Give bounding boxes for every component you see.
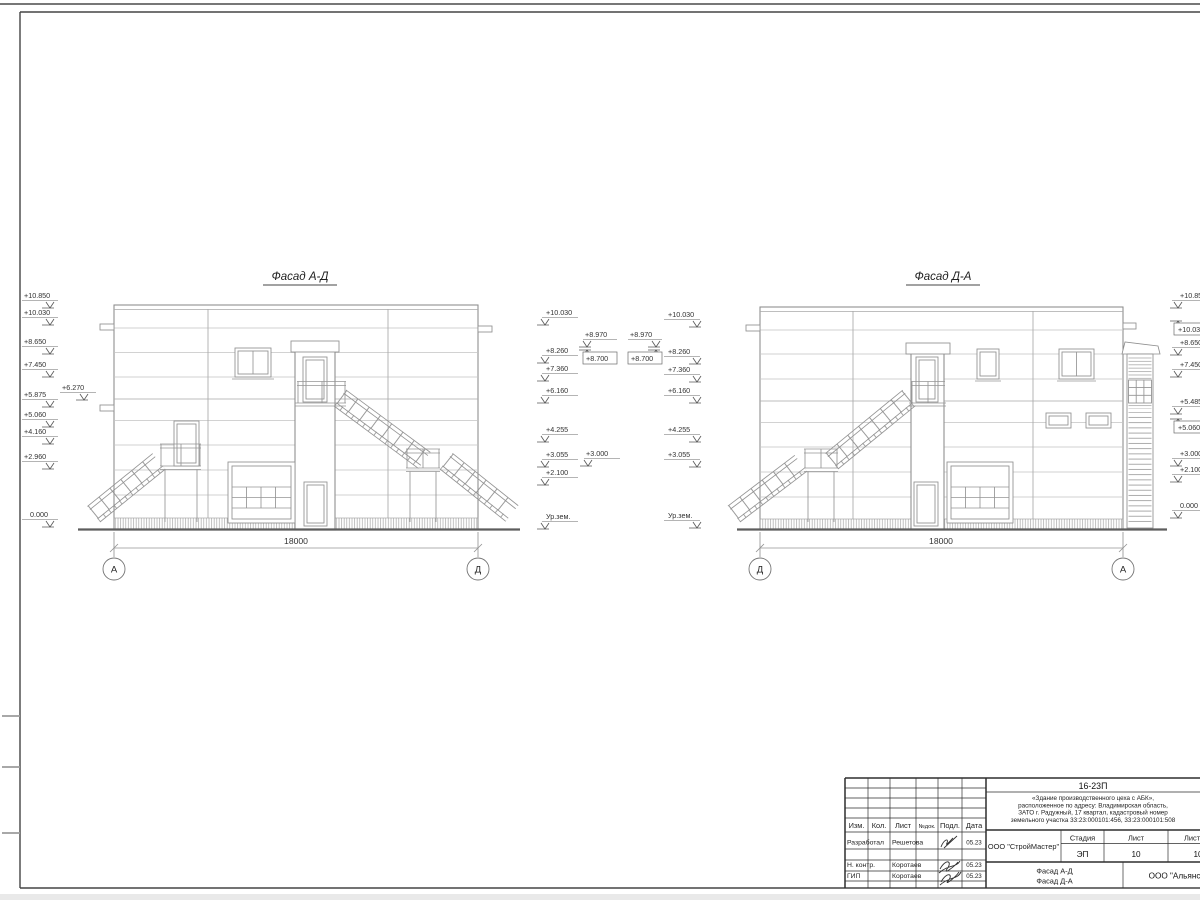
svg-text:Ур.зем.: Ур.зем. bbox=[668, 511, 692, 520]
dimension-label: 18000 bbox=[284, 536, 308, 546]
window bbox=[975, 349, 1001, 381]
sheets-header: Листов bbox=[1184, 834, 1200, 843]
elevation-mark: +4.255 bbox=[664, 425, 701, 442]
wall-bracket bbox=[100, 324, 114, 330]
elevation-mark: +3.000 bbox=[580, 449, 620, 466]
elevation-mark: +7.450 bbox=[1170, 360, 1200, 377]
elevation-mark-framed: +10.030 bbox=[1170, 321, 1200, 335]
elevation-marks: +10.850 +10.030 +8.650 +7.450 +5.485 +5.… bbox=[1170, 291, 1200, 518]
drawing-sheet: Фасад А-Д bbox=[0, 0, 1200, 900]
elevation-mark: +8.260 bbox=[537, 346, 578, 363]
elevation-mark-framed: +5.060 bbox=[1170, 419, 1200, 433]
elevation-mark: +7.360 bbox=[664, 365, 701, 382]
svg-text:+6.160: +6.160 bbox=[668, 386, 690, 395]
facade-title: Фасад А-Д bbox=[272, 271, 329, 283]
wall-bracket bbox=[746, 325, 760, 331]
svg-text:0.000: 0.000 bbox=[1180, 501, 1198, 510]
document-number: 16-23П bbox=[1079, 781, 1108, 791]
svg-text:05.23: 05.23 bbox=[966, 840, 982, 847]
elevation-mark: +8.650 bbox=[1170, 338, 1200, 355]
elevation-mark: +10.030 bbox=[22, 308, 58, 325]
svg-text:+6.160: +6.160 bbox=[546, 386, 568, 395]
elevation-mark: +6.160 bbox=[664, 386, 701, 403]
elevation-mark: +8.970 bbox=[628, 330, 662, 347]
svg-text:05.23: 05.23 bbox=[966, 862, 982, 869]
svg-text:+2.100: +2.100 bbox=[1180, 465, 1200, 474]
elevation-mark: +10.850 bbox=[1170, 291, 1200, 308]
window bbox=[1057, 349, 1096, 381]
elevation-mark: +2.100 bbox=[1170, 465, 1200, 482]
facade-title: Фасад Д-А bbox=[915, 271, 972, 283]
elevation-mark: +3.055 bbox=[664, 450, 701, 467]
dimension: 18000 Д А bbox=[749, 532, 1134, 580]
svg-text:ЗАТО г. Радужный, 17 квартал,: ЗАТО г. Радужный, 17 квартал, кадастровы… bbox=[1018, 809, 1168, 817]
elevation-mark: +8.970 bbox=[579, 330, 617, 347]
svg-text:Дата: Дата bbox=[966, 821, 983, 830]
elevation-mark: +8.650 bbox=[22, 337, 58, 354]
elevation-mark: 0.000 bbox=[22, 510, 58, 527]
dimension-label: 18000 bbox=[929, 536, 953, 546]
elevation-marks: +8.970 +8.700 +10.030 +8.260 +7.360 +6.1… bbox=[628, 310, 701, 528]
elevation-mark: +10.850 bbox=[22, 291, 58, 308]
elevation-mark-framed: +8.700 bbox=[628, 350, 662, 364]
svg-text:+4.255: +4.255 bbox=[546, 425, 568, 434]
svg-text:+3.055: +3.055 bbox=[668, 450, 690, 459]
svg-text:+8.700: +8.700 bbox=[586, 354, 608, 363]
facade-d-a: Фасад Д-А bbox=[628, 271, 1200, 580]
elevation-mark-framed: +8.700 bbox=[579, 350, 617, 364]
svg-text:+8.260: +8.260 bbox=[668, 347, 690, 356]
svg-text:+3.055: +3.055 bbox=[546, 450, 568, 459]
svg-text:Ур.зем.: Ур.зем. bbox=[546, 512, 570, 521]
svg-text:+4.160: +4.160 bbox=[24, 427, 46, 436]
svg-text:Изм.: Изм. bbox=[849, 821, 865, 830]
gate bbox=[228, 462, 295, 523]
entrance-door bbox=[304, 482, 327, 526]
svg-text:+10.030: +10.030 bbox=[546, 308, 572, 317]
svg-text:+7.360: +7.360 bbox=[668, 365, 690, 374]
svg-text:Кол.: Кол. bbox=[872, 821, 887, 830]
svg-text:+8.970: +8.970 bbox=[585, 330, 607, 339]
svg-text:+10.030: +10.030 bbox=[24, 308, 50, 317]
elevation-mark: +5.485 bbox=[1170, 397, 1200, 414]
elevation-mark: +10.030 bbox=[537, 308, 578, 325]
svg-text:+5.485: +5.485 bbox=[1180, 397, 1200, 406]
stage-header: Стадия bbox=[1070, 834, 1095, 843]
svg-text:Решетова: Решетова bbox=[892, 840, 923, 847]
svg-text:+10.850: +10.850 bbox=[24, 291, 50, 300]
window bbox=[1046, 413, 1071, 428]
svg-text:+8.260: +8.260 bbox=[546, 346, 568, 355]
window bbox=[232, 348, 274, 379]
svg-text:+3.000: +3.000 bbox=[586, 449, 608, 458]
svg-text:+10.030: +10.030 bbox=[1178, 325, 1200, 334]
facade-a-d: Фасад А-Д bbox=[22, 271, 620, 580]
elevation-mark: +7.450 bbox=[22, 360, 58, 377]
svg-text:0.000: 0.000 bbox=[30, 510, 48, 519]
window bbox=[1086, 413, 1111, 428]
wall-bracket bbox=[1123, 323, 1136, 329]
svg-text:+2.100: +2.100 bbox=[546, 468, 568, 477]
client-name: ООО "Альянс" bbox=[1149, 872, 1200, 881]
svg-text:+5.060: +5.060 bbox=[24, 410, 46, 419]
axis-label: Д bbox=[757, 565, 764, 576]
svg-text:Лист: Лист bbox=[895, 821, 912, 830]
svg-text:+7.360: +7.360 bbox=[546, 364, 568, 373]
sheet-name-line1: Фасад А-Д bbox=[1036, 867, 1072, 876]
svg-text:+8.650: +8.650 bbox=[1180, 338, 1200, 347]
svg-text:+2.960: +2.960 bbox=[24, 452, 46, 461]
svg-text:05.23: 05.23 bbox=[966, 873, 982, 880]
title-block: 16-23П «Здание производственного цеха с … bbox=[845, 778, 1200, 888]
ground-level-mark: Ур.зем. bbox=[537, 512, 578, 529]
elevation-mark: +5.875 bbox=[22, 390, 58, 407]
facade-drawing-svg: Фасад А-Д bbox=[0, 0, 1200, 900]
paper-edge-shadow bbox=[0, 894, 1200, 900]
svg-text:Коротаев: Коротаев bbox=[892, 873, 922, 880]
svg-text:расположенное по адресу: Влади: расположенное по адресу: Владимирская об… bbox=[1018, 801, 1168, 809]
svg-text:ГИП: ГИП bbox=[847, 873, 861, 880]
svg-text:земельного участка 33:23:00010: земельного участка 33:23:000101:456, 33:… bbox=[1011, 817, 1176, 824]
elevation-mark: +8.260 bbox=[664, 347, 701, 364]
project-description: «Здание производственного цеха с АБК», р… bbox=[1011, 795, 1176, 824]
svg-text:Коротаев: Коротаев bbox=[892, 862, 922, 869]
elevation-mark: +6.270 bbox=[60, 383, 96, 400]
entrance-door bbox=[914, 482, 938, 526]
svg-text:+6.270: +6.270 bbox=[62, 383, 84, 392]
sheet-number: 10 bbox=[1131, 850, 1141, 859]
elevation-mark: +6.160 bbox=[537, 386, 578, 403]
elevation-mark: +4.255 bbox=[537, 425, 578, 442]
elevation-mark: +2.960 bbox=[22, 452, 58, 469]
wall-bracket bbox=[478, 326, 492, 332]
svg-text:«Здание производственного цеха: «Здание производственного цеха с АБК», bbox=[1032, 795, 1154, 802]
stage-value: ЭП bbox=[1077, 850, 1089, 859]
svg-text:+8.700: +8.700 bbox=[631, 354, 653, 363]
svg-text:+8.970: +8.970 bbox=[630, 330, 652, 339]
elevation-marks: +10.850 +10.030 +8.650 +7.450 +5.875 +5.… bbox=[22, 291, 96, 527]
signature bbox=[941, 836, 957, 848]
svg-text:+7.450: +7.450 bbox=[1180, 360, 1200, 369]
elevation-mark: +3.000 bbox=[1170, 449, 1200, 466]
svg-text:Подл.: Подл. bbox=[940, 821, 960, 830]
sheet-name-line2: Фасад Д-А bbox=[1036, 877, 1072, 886]
canopy bbox=[906, 343, 950, 354]
canopy bbox=[291, 341, 339, 352]
svg-text:№док.: №док. bbox=[919, 824, 936, 830]
ladder-rungs bbox=[1129, 412, 1152, 526]
gate bbox=[947, 462, 1013, 523]
axis-label: А bbox=[1120, 565, 1127, 576]
svg-text:+4.255: +4.255 bbox=[668, 425, 690, 434]
svg-text:+10.030: +10.030 bbox=[668, 310, 694, 319]
ladder-shaft bbox=[1122, 342, 1160, 528]
svg-text:Н. контр.: Н. контр. bbox=[847, 862, 875, 869]
signature bbox=[940, 872, 961, 885]
svg-text:+7.450: +7.450 bbox=[24, 360, 46, 369]
axis-label: А bbox=[111, 565, 118, 576]
dimension: 18000 А Д bbox=[103, 532, 489, 580]
elevation-mark: +4.160 bbox=[22, 427, 58, 444]
axis-label: Д bbox=[475, 565, 482, 576]
svg-text:Разработал: Разработал bbox=[847, 839, 884, 847]
svg-text:+10.850: +10.850 bbox=[1180, 291, 1200, 300]
elevation-mark: 0.000 bbox=[1170, 501, 1200, 518]
elevation-marks: +10.030 +8.260 +7.360 +6.160 +4.255 +3.0… bbox=[537, 308, 620, 529]
elevation-mark: +3.055 bbox=[537, 450, 578, 467]
elevation-mark: +7.360 bbox=[537, 364, 578, 381]
ground-level-mark: Ур.зем. bbox=[664, 511, 701, 528]
wall-bracket bbox=[100, 405, 114, 411]
elevation-mark: +2.100 bbox=[537, 468, 578, 485]
svg-text:+5.875: +5.875 bbox=[24, 390, 46, 399]
elevation-mark: +5.060 bbox=[22, 410, 58, 427]
contractor-name: ООО "СтройМастер" bbox=[988, 842, 1060, 851]
sheet-header: Лист bbox=[1128, 834, 1145, 843]
building-elevation bbox=[728, 307, 1167, 530]
svg-text:+5.060: +5.060 bbox=[1178, 423, 1200, 432]
elevation-mark: +10.030 bbox=[664, 310, 701, 327]
svg-text:+3.000: +3.000 bbox=[1180, 449, 1200, 458]
sheets-total: 10 bbox=[1193, 850, 1200, 859]
svg-text:+8.650: +8.650 bbox=[24, 337, 46, 346]
building-elevation bbox=[78, 305, 520, 530]
